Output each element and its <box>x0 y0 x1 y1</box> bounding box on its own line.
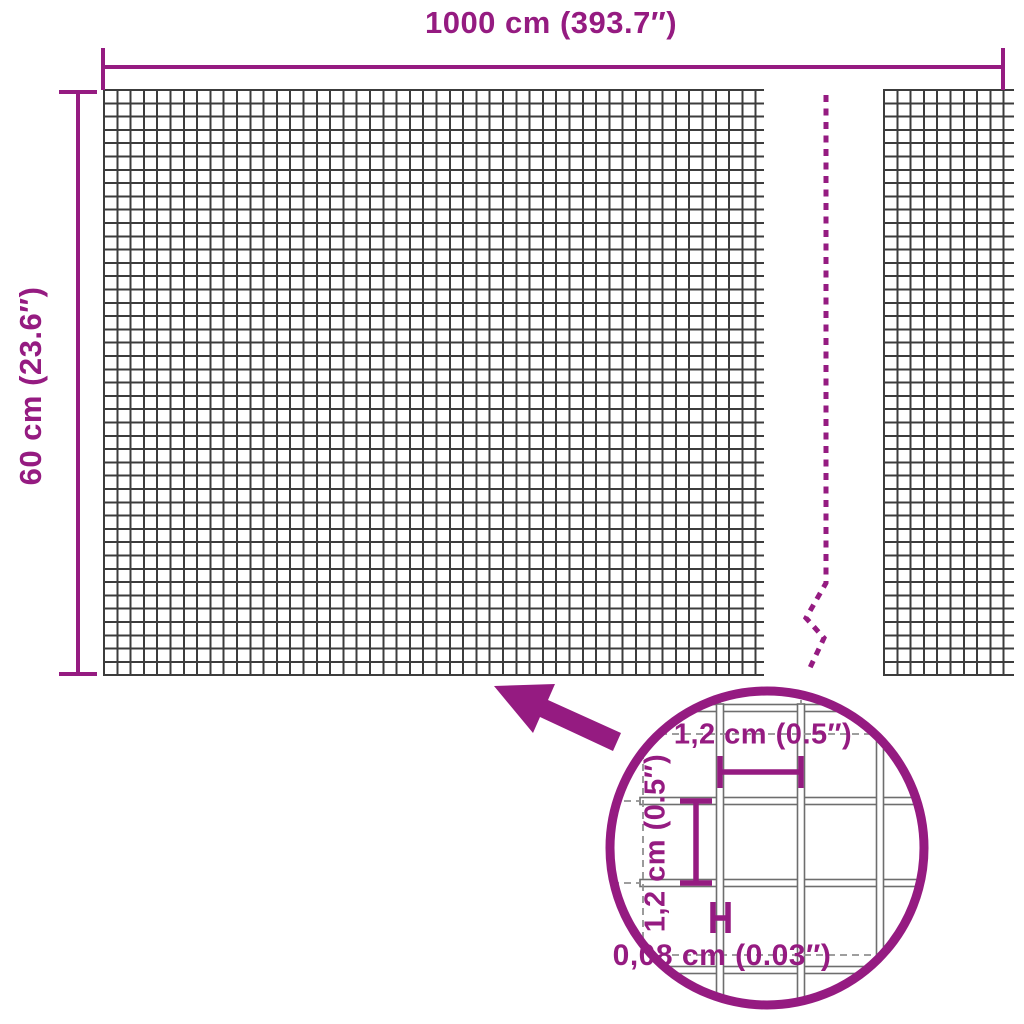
height-dimension-cap-top <box>59 90 97 94</box>
height-dimension-cap-bottom <box>59 672 97 676</box>
width-dimension-bar <box>103 65 1003 69</box>
product-dimension-diagram: 1000 cm (393.7″) 60 cm (23.6″) 1,2 cm (0… <box>0 0 1024 1024</box>
detail-wire-vertical <box>877 704 884 1012</box>
width-dimension-line <box>101 48 1005 90</box>
width-dimension-cap-left <box>101 48 105 90</box>
diagram-overlay <box>0 0 1024 1024</box>
mesh-opening-height-label: 1,2 cm (0.5″) <box>640 754 673 932</box>
cut-break-line <box>806 95 826 672</box>
wire-thickness-label: 0,08 cm (0.03″) <box>613 939 832 973</box>
width-dimension-cap-right <box>1001 48 1005 90</box>
height-dimension-bar <box>76 92 80 675</box>
mesh-opening-width-label: 1,2 cm (0.5″) <box>674 719 852 752</box>
total-width-label: 1000 cm (393.7″) <box>425 5 677 41</box>
zoom-arrow-icon <box>494 684 621 751</box>
total-height-label: 60 cm (23.6″) <box>13 287 49 486</box>
height-dimension-line <box>59 90 97 676</box>
